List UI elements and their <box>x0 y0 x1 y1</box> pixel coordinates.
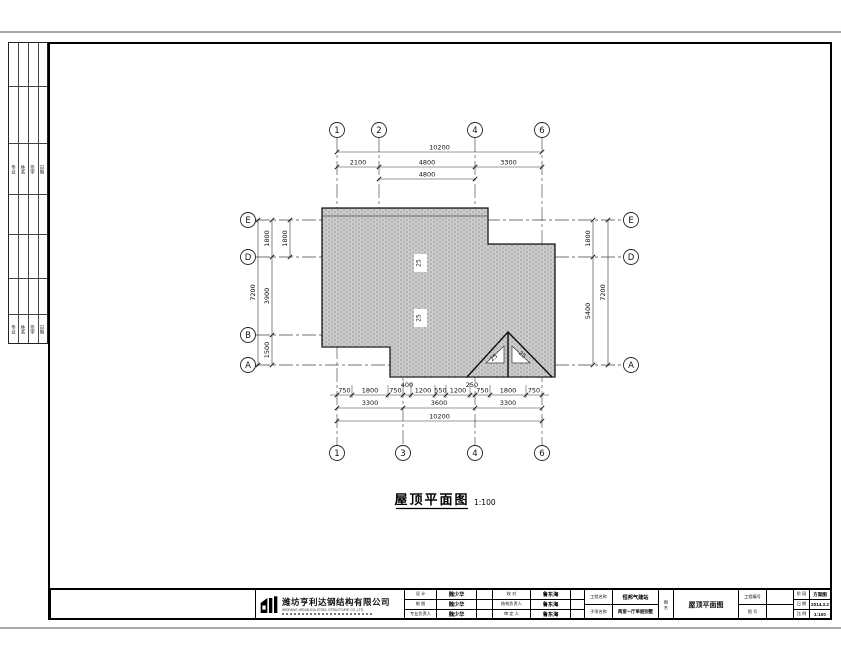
dim-label: 750 <box>476 387 488 395</box>
drawing-scale: 1:100 <box>474 498 496 507</box>
dim-label: 2100 <box>350 159 367 167</box>
sig-divider <box>38 43 39 343</box>
field-value: 鲁东海 <box>531 610 571 620</box>
dim-label: 1800 <box>362 387 379 395</box>
dim-label: 750 <box>338 387 350 395</box>
sig-divider <box>9 86 47 87</box>
dim-label: 1200 <box>415 387 432 395</box>
dim-label: 1800 <box>263 230 271 247</box>
company-contact-line <box>282 613 374 615</box>
dim-label: 400 <box>401 381 413 389</box>
field-value: 魏少华 <box>437 600 477 610</box>
sig-cell: 专业 <box>9 145 19 193</box>
grid-bubble-label: A <box>628 361 634 371</box>
project-no-value <box>767 590 794 605</box>
drawing-title-group: 屋顶平面图 1:100 <box>394 493 495 509</box>
stage-label: 阶 段 <box>794 590 810 600</box>
field-label: 设 计 <box>405 590 437 600</box>
field-blank <box>571 590 585 600</box>
company-cell: 潍坊亨利达钢结构有限公司 WEIFANG HENGLIDA STEEL STRU… <box>255 590 404 620</box>
sig-divider <box>18 43 19 343</box>
grid-bubble-label: E <box>628 216 633 226</box>
project-no-label: 工程编号 <box>739 590 767 605</box>
sig-cell: 姓名 <box>19 145 29 193</box>
sig-cell: 专业 <box>9 316 19 343</box>
scale-value: 1:100 <box>810 610 831 620</box>
subproject-label: 子项名称 <box>585 605 613 620</box>
sig-text-row: 专业 姓名 签字 日期 <box>9 145 47 193</box>
sig-cell: 签字 <box>28 316 38 343</box>
top-dimensions: 10200 2100 4800 3300 4800 <box>335 144 544 182</box>
bottom-dimensions: 750 1800 750 400 1200 550 1200 250 750 1… <box>330 381 549 423</box>
field-label: 结构负责人 <box>493 600 531 610</box>
right-dimensions: 1800 5400 7200 <box>584 218 610 367</box>
dim-label: 3300 <box>362 399 379 407</box>
sig-text-row: 专业 姓名 签字 日期 <box>9 316 47 343</box>
dim-label: 4800 <box>419 159 436 167</box>
roof-plan-drawing: 25 25 25 25 10200 2100 4800 3300 4800 <box>230 110 660 520</box>
dim-label: 550 <box>434 387 446 395</box>
dim-label: 3600 <box>431 399 448 407</box>
field-blank <box>571 610 585 620</box>
field-value: 魏少华 <box>437 610 477 620</box>
grid-bubble-label: D <box>628 253 635 263</box>
field-label: 审 定 人 <box>493 610 531 620</box>
grid-bubble-label: A <box>245 361 251 371</box>
dim-label: 3900 <box>263 288 271 305</box>
field-blank <box>477 610 493 620</box>
sheet-name-label: 图 名 <box>659 590 674 620</box>
grid-bubble-label: 4 <box>472 126 477 136</box>
grid-bubble-label: 1 <box>334 449 339 459</box>
date-label: 日 期 <box>794 600 810 610</box>
drawing-title: 屋顶平面图 <box>394 493 469 508</box>
number-table: 工程编号 图 号 <box>738 590 793 620</box>
sig-cell: 日期 <box>38 145 48 193</box>
sig-cell: 日期 <box>38 316 48 343</box>
sheet-no-label: 图 号 <box>739 605 767 620</box>
sig-divider <box>9 234 47 235</box>
dim-label: 5400 <box>584 303 592 320</box>
company-logo-icon <box>259 596 279 615</box>
signoff-table: 设 计 魏少华 校 对 鲁东海 制 图 魏少华 结构负责人 鲁东海 专业负责人 … <box>404 590 584 620</box>
grid-bubble-label: 6 <box>539 126 544 136</box>
left-dimensions: 7200 1800 3900 1500 1800 <box>249 218 292 367</box>
grid-bubble-label: 6 <box>539 449 544 459</box>
sig-cell: 姓名 <box>19 316 29 343</box>
dim-label: 10200 <box>429 144 450 152</box>
project-name-value: 恒邦气建站 <box>613 590 659 605</box>
title-block-empty-cell <box>50 590 255 620</box>
field-value: 魏少华 <box>437 590 477 600</box>
project-name-label: 工程名称 <box>585 590 613 605</box>
field-value: 鲁东海 <box>531 600 571 610</box>
dim-label: 1800 <box>281 230 289 247</box>
sig-divider <box>9 143 47 144</box>
field-blank <box>477 590 493 600</box>
bottom-divider-line <box>0 627 841 629</box>
signature-strip: 专业 姓名 签字 日期 专业 姓名 签字 日期 <box>8 42 48 344</box>
dim-label: 7200 <box>599 284 607 301</box>
date-value: 2014.3.2 <box>810 600 831 610</box>
dim-label: 10200 <box>429 413 450 421</box>
stage-table: 阶 段 方案图 日 期 2014.3.2 比 例 1:100 <box>793 590 830 620</box>
sig-cell: 签字 <box>28 145 38 193</box>
sig-divider <box>9 314 47 315</box>
subproject-value: 两室一厅单层别墅 <box>613 605 659 620</box>
scale-label: 比 例 <box>794 610 810 620</box>
grid-bubble-label: 2 <box>376 126 381 136</box>
project-table: 工程名称 恒邦气建站 子项名称 两室一厅单层别墅 <box>584 590 658 620</box>
sheet-name-cell: 图 名 屋顶平面图 <box>658 590 738 620</box>
sig-divider <box>9 194 47 195</box>
grid-bubble-label: D <box>245 253 252 263</box>
grid-bubble-label: B <box>245 331 251 341</box>
dim-label: 3300 <box>500 159 517 167</box>
dim-label: 1800 <box>500 387 517 395</box>
slope-label: 25 <box>416 314 423 322</box>
dim-label: 4800 <box>419 171 436 179</box>
top-divider-line <box>0 31 841 33</box>
stage-value: 方案图 <box>810 590 831 600</box>
company-name-en: WEIFANG HENGLIDA STEEL STRUCTURE CO.,LTD… <box>282 608 390 612</box>
title-block: 潍坊亨利达钢结构有限公司 WEIFANG HENGLIDA STEEL STRU… <box>50 588 830 618</box>
company-name: 潍坊亨利达钢结构有限公司 <box>282 596 390 608</box>
field-blank <box>571 600 585 610</box>
grid-bubble-label: 3 <box>400 449 405 459</box>
sheet-name-value: 屋顶平面图 <box>674 590 738 620</box>
field-blank <box>477 600 493 610</box>
grid-bubble-label: 4 <box>472 449 477 459</box>
field-label: 专业负责人 <box>405 610 437 620</box>
sig-divider <box>9 278 47 279</box>
slope-label: 25 <box>416 259 423 267</box>
grid-bubble-label: 1 <box>334 126 339 136</box>
drawing-sheet: 专业 姓名 签字 日期 专业 姓名 签字 日期 <box>0 0 841 660</box>
dim-label: 1500 <box>263 342 271 359</box>
grid-bubble-label: E <box>245 216 250 226</box>
field-label: 制 图 <box>405 600 437 610</box>
sig-divider <box>28 43 29 343</box>
field-value: 鲁东海 <box>531 590 571 600</box>
dim-label: 750 <box>528 387 540 395</box>
sheet-no-value <box>767 605 794 620</box>
dim-label: 1200 <box>450 387 467 395</box>
dim-label: 7200 <box>249 284 257 301</box>
dim-label: 1800 <box>584 230 592 247</box>
dim-label: 3300 <box>500 399 517 407</box>
field-label: 校 对 <box>493 590 531 600</box>
